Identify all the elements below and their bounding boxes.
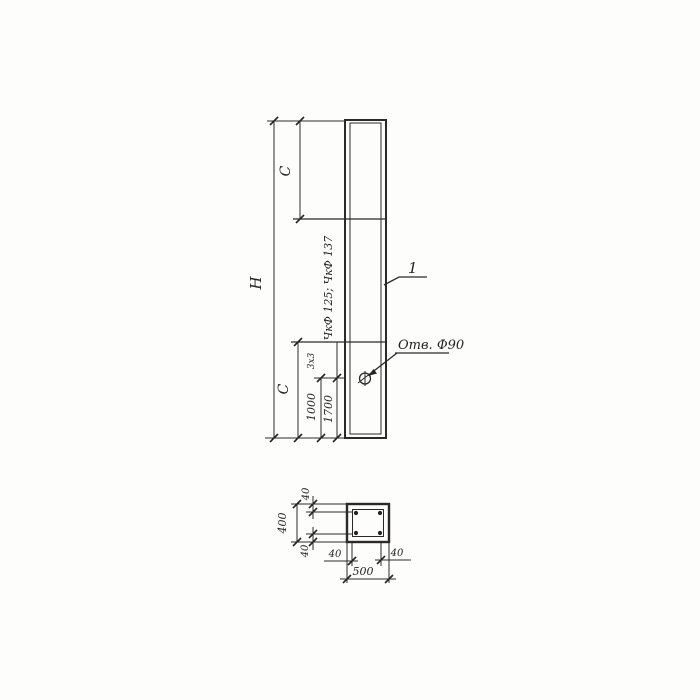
dim-label-40-bottom: 40 (300, 544, 311, 558)
drawing-sheet: Отв. Ф90 1 H C C 1000 1700 3х3 ЧкФ 125; … (0, 0, 700, 700)
rebar-dot-br (378, 531, 382, 535)
technical-drawing: Отв. Ф90 1 H C C 1000 1700 3х3 ЧкФ 125; … (0, 0, 700, 700)
dim-label-500: 500 (353, 565, 374, 578)
small-note-label: 3х3 (307, 352, 317, 369)
callout-leader (384, 277, 427, 285)
dim-label-40-left: 40 (328, 549, 342, 560)
dim-label-C-bottom: C (276, 383, 292, 394)
dim-label-H: H (247, 276, 265, 291)
section-view: 400 40 40 40 40 500 (276, 487, 411, 583)
dim-label-400: 400 (276, 513, 289, 535)
column-inner-line (350, 123, 381, 434)
marks-note-label: ЧкФ 125; ЧкФ 137 (322, 236, 335, 341)
dim-label-40-right: 40 (390, 548, 404, 559)
elevation-view: Отв. Ф90 1 H C C 1000 1700 3х3 ЧкФ 125; … (247, 117, 464, 442)
rebar-dot-tl (354, 511, 358, 515)
dim-label-1000: 1000 (305, 393, 318, 421)
dim-label-C-top: C (278, 165, 294, 176)
rebar-dot-bl (354, 531, 358, 535)
column-outline (345, 120, 386, 438)
dim-label-40-top: 40 (301, 487, 312, 501)
callout-label: 1 (408, 259, 418, 277)
dim-label-1700: 1700 (322, 395, 335, 423)
hole-note-label: Отв. Ф90 (398, 338, 464, 353)
rebar-dot-tr (378, 511, 382, 515)
